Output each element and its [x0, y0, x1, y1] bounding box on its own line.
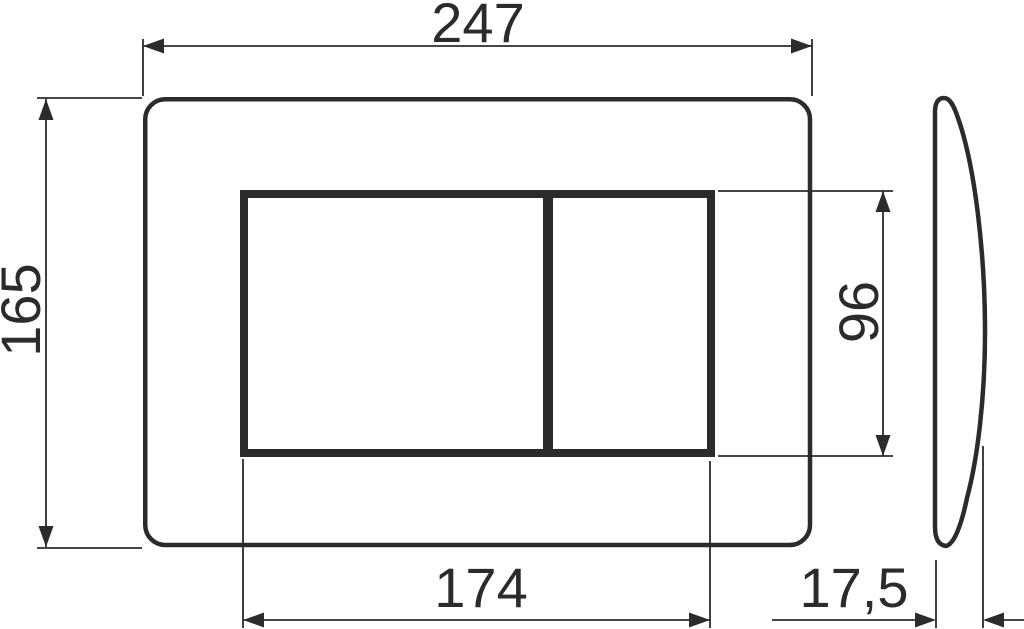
- dim-247-arrowhead-left: [143, 39, 164, 54]
- dim-96-arrowhead-top: [876, 191, 891, 212]
- buttons-frame-rect: [244, 194, 711, 453]
- drawing-sheet: 247 165 96 174 17,5: [0, 0, 1024, 629]
- dim-165-arrowhead-bottom: [39, 526, 54, 547]
- dim-label-plate-depth: 17,5: [704, 560, 1004, 616]
- dim-174-arrowhead-left: [243, 613, 264, 628]
- dim-label-overall-width: 247: [328, 0, 628, 51]
- dim-165-arrowhead-top: [39, 99, 54, 120]
- dim-247-arrowhead-right: [791, 39, 812, 54]
- dim-label-button-area-width: 174: [331, 560, 631, 616]
- dim-label-overall-height: 165: [0, 230, 49, 390]
- side-profile-outline: [935, 98, 985, 546]
- dim-label-button-area-height: 96: [831, 232, 887, 392]
- dim-96-arrowhead-bottom: [876, 435, 891, 456]
